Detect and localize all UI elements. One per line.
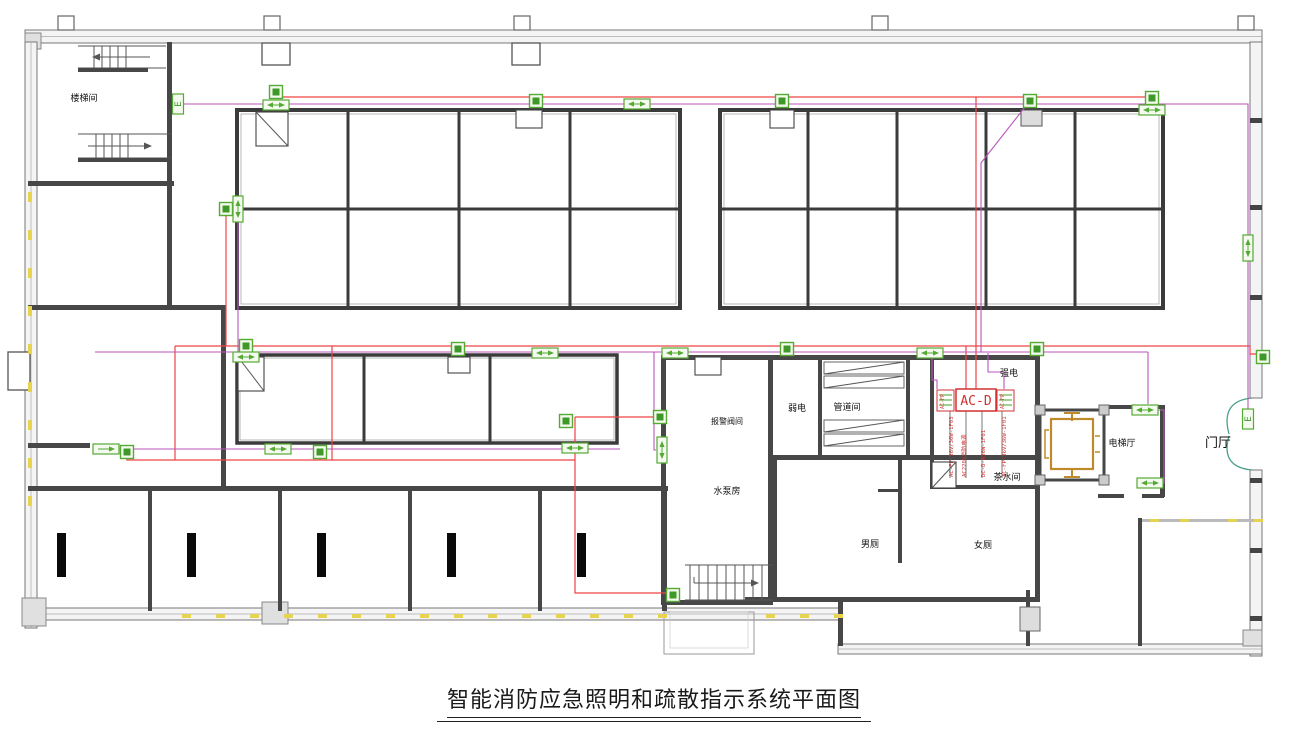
room-label-alarm-valve-room: 报警阀间 bbox=[711, 416, 743, 426]
door-openings bbox=[238, 110, 1042, 488]
window-tick bbox=[28, 230, 32, 240]
room-label-pump-room: 水泵房 bbox=[713, 485, 740, 497]
interior-walls bbox=[28, 42, 1262, 646]
room-label-womens-toilet: 女厕 bbox=[974, 539, 992, 551]
wiring-red-layer bbox=[127, 92, 1258, 593]
window-tick bbox=[216, 614, 225, 618]
elevator-car-icon bbox=[1045, 413, 1100, 477]
exit-indicator-horizontal-icon bbox=[917, 348, 943, 358]
window-tick bbox=[28, 306, 32, 316]
exit-indicator-horizontal-icon bbox=[1137, 478, 1163, 488]
floor-plan-drawing: EE AC-DAC-FPAC-FP 楼梯间报警阀间水泵房弱电管道间强电茶水间男厕… bbox=[0, 0, 1308, 750]
window-tick bbox=[250, 614, 259, 618]
window-tick bbox=[1180, 519, 1189, 522]
svg-text:AC-D: AC-D bbox=[960, 394, 991, 409]
exit-indicator-horizontal-icon bbox=[233, 352, 259, 362]
window-tick bbox=[658, 614, 667, 618]
svg-text:E: E bbox=[174, 101, 184, 107]
wire-red bbox=[276, 92, 1152, 102]
distribution-panel: AC-DAC-FPAC-FP bbox=[937, 389, 1014, 411]
circuit-labels-layer: AC-FP-36V/36W-1F03AC220V消防电源DC-D-N36W-1F… bbox=[949, 416, 1008, 477]
door-leaf-bars bbox=[57, 533, 586, 577]
window-tick bbox=[28, 420, 32, 430]
emergency-ceiling-light-icon bbox=[1031, 343, 1044, 356]
window-tick bbox=[318, 614, 327, 618]
exit-indicator-horizontal-icon bbox=[1132, 405, 1158, 415]
circuit-label: AC-FP-36V/36W-1F03 bbox=[949, 416, 955, 477]
exit-indicator-horizontal-icon bbox=[263, 100, 289, 110]
exit-indicator-vertical-icon bbox=[657, 437, 667, 463]
window-tick bbox=[556, 614, 565, 618]
room-label-mens-toilet: 男厕 bbox=[861, 539, 879, 550]
floorplan-page: { "title": { "text": "智能消防应急照明和疏散指示系统平面图… bbox=[0, 0, 1308, 750]
emergency-ceiling-light-icon bbox=[220, 203, 233, 216]
room-labels-layer: 楼梯间报警阀间水泵房弱电管道间强电茶水间男厕女厕电梯厅门厅 bbox=[70, 92, 1231, 551]
emergency-ceiling-light-icon bbox=[530, 95, 543, 108]
emergency-ceiling-light-icon bbox=[121, 446, 134, 459]
exit-indicator-horizontal-icon bbox=[624, 99, 650, 109]
exit-indicator-horizontal-icon bbox=[1139, 105, 1165, 115]
circuit-label: AC-FP-36V/36W-1F01 bbox=[1002, 416, 1008, 477]
exit-indicator-horizontal-icon bbox=[562, 443, 588, 453]
window-tick bbox=[1150, 519, 1159, 522]
room-label-foyer: 门厅 bbox=[1205, 436, 1231, 451]
exit-indicator-horizontal-icon bbox=[93, 444, 119, 454]
window-tick bbox=[28, 458, 32, 468]
room-label-pipe-room: 管道间 bbox=[833, 401, 860, 413]
drawing-title: 智能消防应急照明和疏散指示系统平面图 bbox=[0, 682, 1308, 722]
emergency-ceiling-light-icon bbox=[1257, 351, 1270, 364]
window-tick bbox=[800, 614, 809, 618]
emergency-ceiling-light-icon bbox=[314, 446, 327, 459]
window-tick bbox=[488, 614, 497, 618]
window-tick bbox=[420, 614, 429, 618]
window-tick bbox=[28, 268, 32, 278]
emergency-ceiling-light-icon bbox=[240, 340, 253, 353]
stairs-top-left bbox=[78, 46, 172, 162]
window-tick bbox=[624, 614, 633, 618]
emergency-ceiling-light-icon bbox=[1024, 95, 1037, 108]
exit-indicator-vertical-icon bbox=[1243, 235, 1253, 261]
window-tick bbox=[28, 496, 32, 506]
drawing-title-text: 智能消防应急照明和疏散指示系统平面图 bbox=[437, 682, 871, 722]
room-label-elevator-hall: 电梯厅 bbox=[1108, 437, 1135, 449]
window-tick bbox=[1254, 519, 1263, 522]
emergency-ceiling-light-icon bbox=[270, 86, 283, 99]
window-tick bbox=[28, 344, 32, 354]
exit-indicator-horizontal-icon bbox=[662, 348, 688, 358]
wire-red bbox=[127, 452, 575, 460]
emergency-ceiling-light-icon bbox=[654, 411, 667, 424]
window-tick bbox=[182, 614, 191, 618]
circuit-label: AC220V消防电源 bbox=[960, 434, 968, 477]
emergency-ceiling-light-icon bbox=[776, 95, 789, 108]
emergency-lamp-e-icon: E bbox=[173, 94, 185, 114]
window-tick bbox=[590, 614, 599, 618]
exit-indicator-horizontal-icon bbox=[532, 348, 558, 358]
room-label-weak-electric-room: 弱电 bbox=[788, 402, 806, 414]
wire-magenta bbox=[654, 352, 656, 450]
window-ticks bbox=[28, 192, 1263, 618]
emergency-ceiling-light-icon bbox=[1146, 92, 1159, 105]
circuit-label: DC-D-N36W-1F01 bbox=[981, 430, 987, 477]
room-label-strong-electric-room: 强电 bbox=[1000, 367, 1018, 379]
emergency-ceiling-light-icon bbox=[667, 589, 680, 602]
svg-text:AC-FP: AC-FP bbox=[940, 394, 946, 409]
svg-text:E: E bbox=[1244, 416, 1254, 422]
emergency-ceiling-light-icon bbox=[560, 415, 573, 428]
window-tick bbox=[284, 614, 293, 618]
elevator bbox=[1035, 405, 1109, 485]
window-tick bbox=[454, 614, 463, 618]
partition-blocks bbox=[237, 110, 1163, 443]
window-tick bbox=[1228, 519, 1237, 522]
circuit-leader-lines bbox=[950, 411, 1002, 478]
exit-indicator-horizontal-icon bbox=[265, 444, 291, 454]
window-tick bbox=[28, 382, 32, 392]
emergency-lamp-e-icon: E bbox=[1243, 409, 1255, 429]
window-tick bbox=[386, 614, 395, 618]
window-tick bbox=[28, 192, 32, 202]
window-tick bbox=[522, 614, 531, 618]
room-label-stairwell: 楼梯间 bbox=[70, 92, 97, 104]
exit-indicator-vertical-icon bbox=[233, 196, 243, 222]
svg-text:AC-FP: AC-FP bbox=[1000, 394, 1006, 409]
window-tick bbox=[766, 614, 775, 618]
wire-red bbox=[175, 346, 1258, 354]
wire-magenta bbox=[981, 107, 1025, 352]
emergency-ceiling-light-icon bbox=[452, 343, 465, 356]
window-tick bbox=[352, 614, 361, 618]
emergency-ceiling-light-icon bbox=[781, 343, 794, 356]
window-tick bbox=[834, 614, 843, 618]
